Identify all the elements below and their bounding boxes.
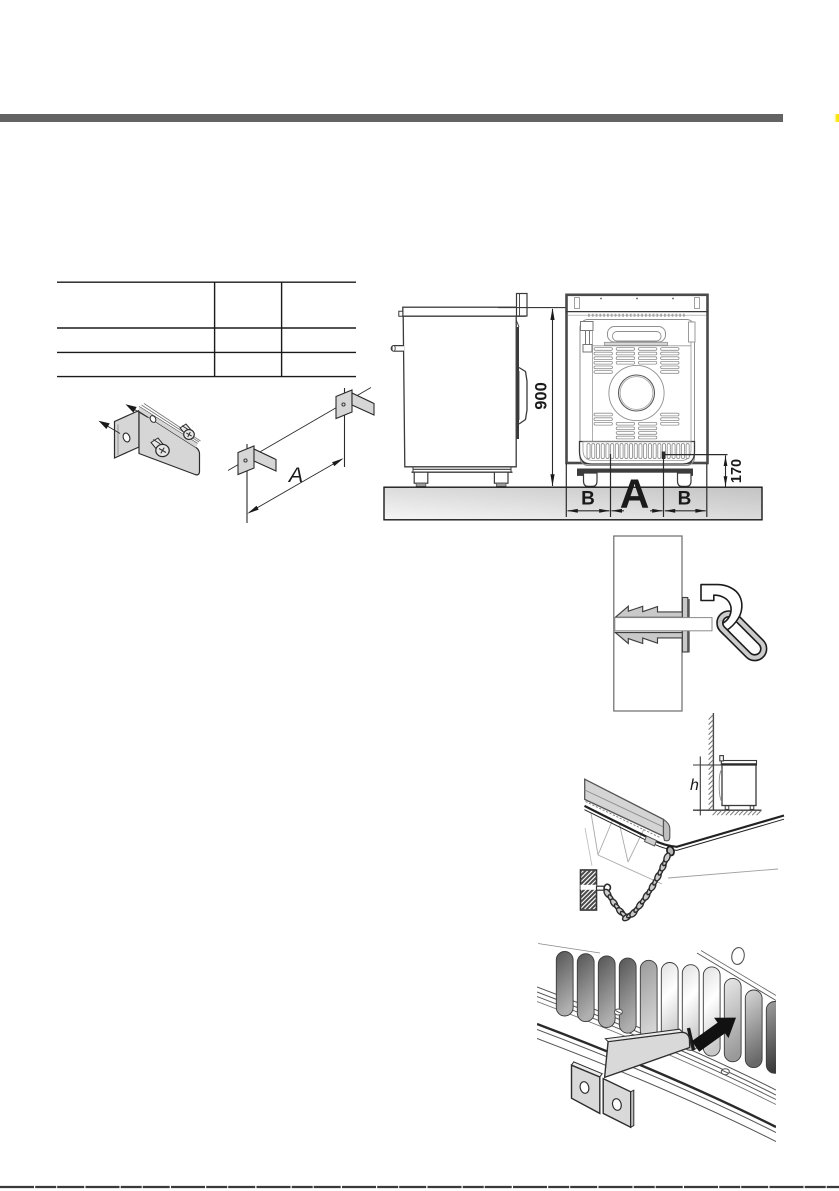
svg-text:B: B [678,489,692,510]
svg-text:B: B [581,489,595,510]
svg-text:900: 900 [533,382,551,410]
svg-text:A: A [287,463,303,487]
svg-text:h: h [690,777,699,794]
svg-text:170: 170 [729,459,745,483]
svg-text:A: A [620,471,650,517]
